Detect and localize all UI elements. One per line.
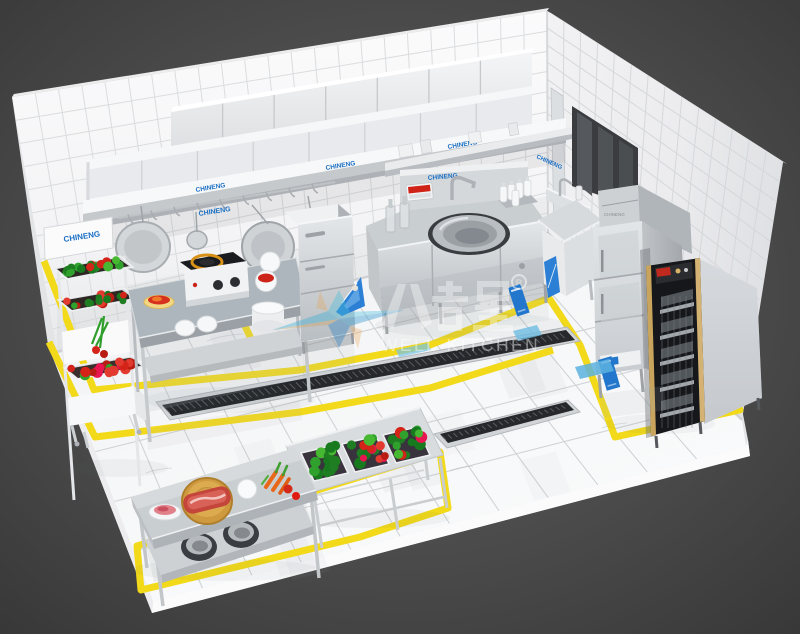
svg-text:WELL-KITCHEN: WELL-KITCHEN <box>381 335 540 355</box>
svg-text:R: R <box>516 278 523 288</box>
svg-text:CHINENG: CHINENG <box>604 212 625 217</box>
